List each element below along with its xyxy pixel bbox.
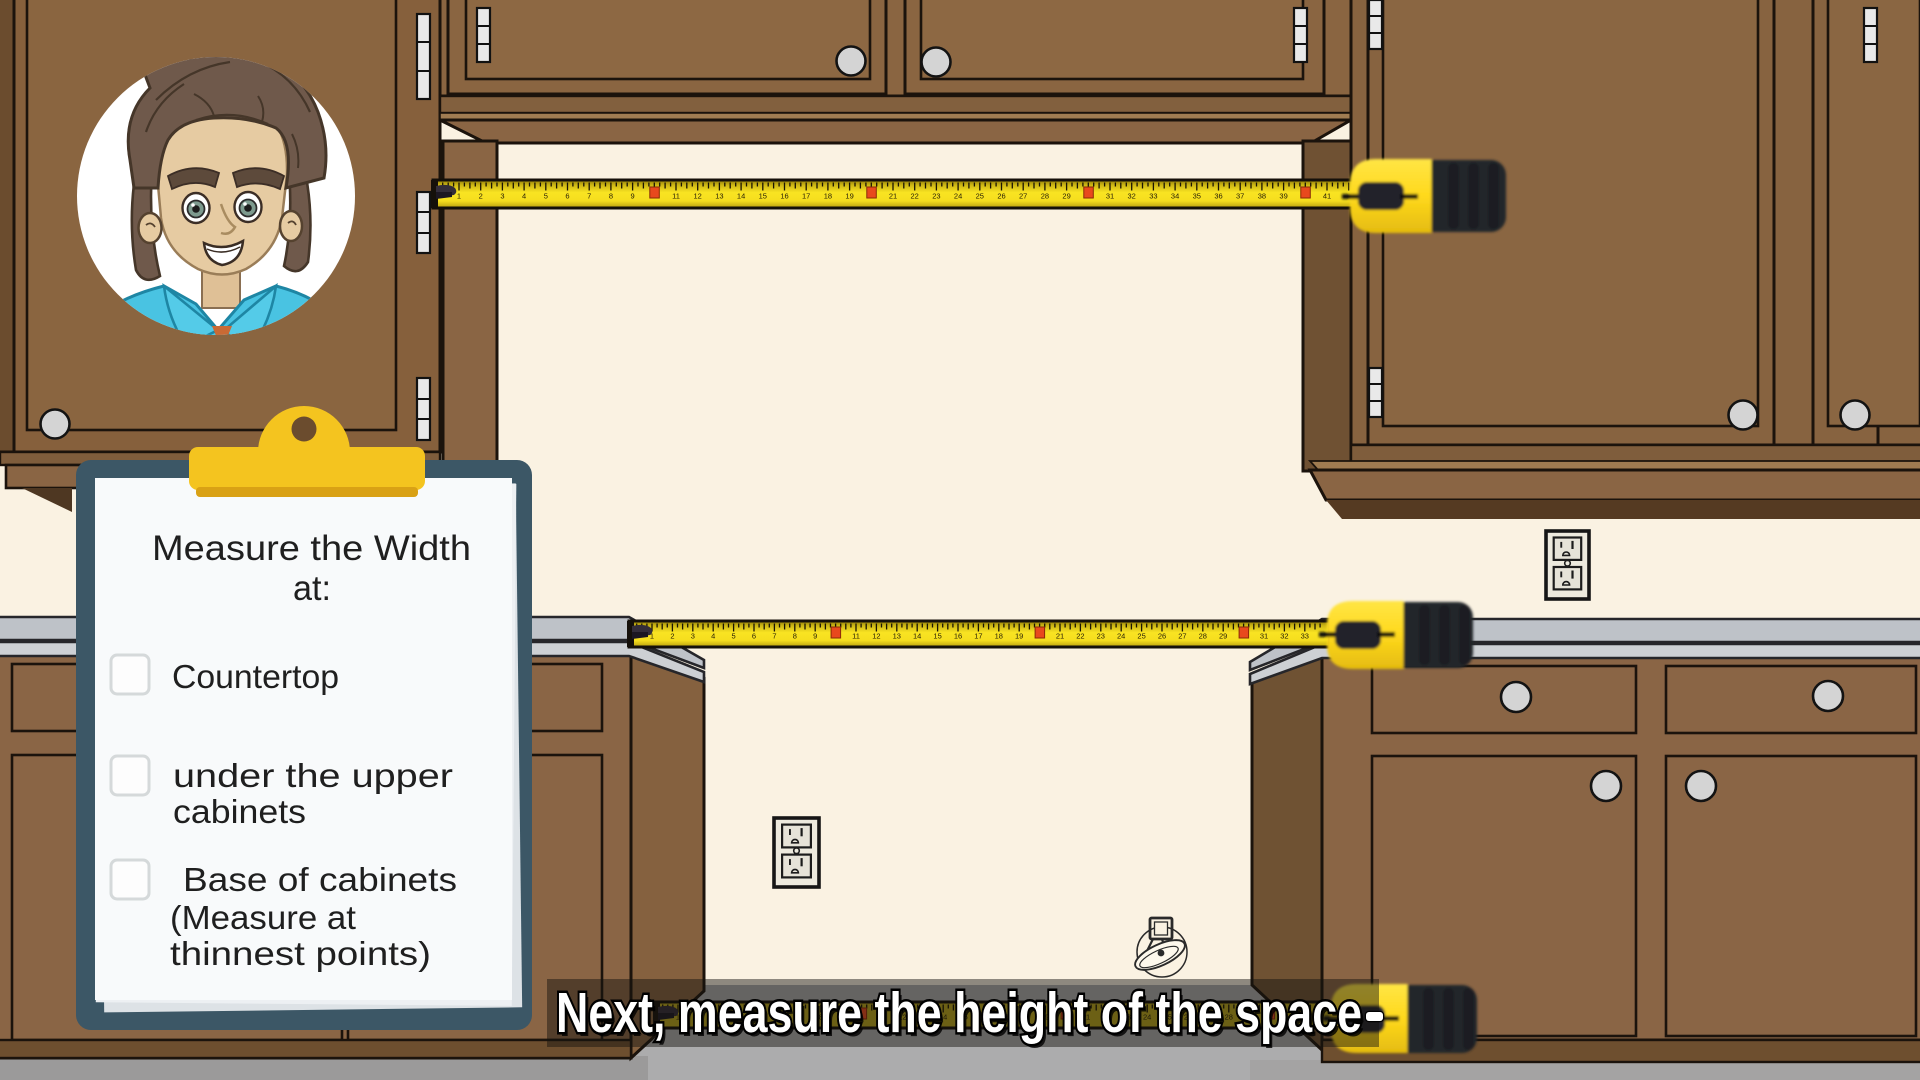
svg-text:9: 9: [631, 192, 635, 201]
svg-text:32: 32: [1128, 192, 1136, 201]
svg-text:6: 6: [565, 192, 569, 201]
svg-text:21: 21: [1056, 632, 1064, 641]
svg-text:5: 5: [544, 192, 548, 201]
svg-text:29: 29: [1219, 632, 1227, 641]
svg-text:thinnest points): thinnest points): [170, 935, 431, 972]
svg-text:2: 2: [479, 192, 483, 201]
svg-text:39: 39: [1279, 192, 1287, 201]
svg-text:32: 32: [1280, 632, 1288, 641]
svg-text:33: 33: [1149, 192, 1157, 201]
svg-text:3: 3: [691, 632, 695, 641]
svg-text:15: 15: [759, 192, 767, 201]
svg-text:25: 25: [976, 192, 984, 201]
svg-text:19: 19: [1015, 632, 1023, 641]
svg-text:(Measure at: (Measure at: [170, 899, 356, 936]
svg-text:Next, measure the height of th: Next, measure the height of the space: [556, 981, 1362, 1045]
svg-text:8: 8: [609, 192, 613, 201]
svg-text:28: 28: [1199, 632, 1207, 641]
svg-text:at:: at:: [293, 569, 331, 608]
svg-text:16: 16: [780, 192, 788, 201]
svg-text:24: 24: [954, 192, 962, 201]
svg-text:Measure the Width: Measure the Width: [152, 529, 471, 568]
svg-text:31: 31: [1260, 632, 1268, 641]
svg-text:19: 19: [845, 192, 853, 201]
svg-text:1: 1: [457, 192, 461, 201]
svg-text:12: 12: [694, 192, 702, 201]
svg-text:5: 5: [732, 632, 736, 641]
svg-text:31: 31: [1106, 192, 1114, 201]
svg-text:25: 25: [1137, 632, 1145, 641]
svg-text:4: 4: [711, 632, 715, 641]
svg-text:33: 33: [1301, 632, 1309, 641]
svg-text:26: 26: [1158, 632, 1166, 641]
svg-text:38: 38: [1258, 192, 1266, 201]
svg-text:27: 27: [1019, 192, 1027, 201]
svg-text:24: 24: [1117, 632, 1125, 641]
svg-text:18: 18: [824, 192, 832, 201]
svg-text:7: 7: [772, 632, 776, 641]
svg-text:26: 26: [997, 192, 1005, 201]
svg-text:15: 15: [933, 632, 941, 641]
svg-text:11: 11: [852, 632, 860, 641]
svg-text:41: 41: [1323, 192, 1331, 201]
svg-text:29: 29: [1062, 192, 1070, 201]
svg-text:28: 28: [1041, 192, 1049, 201]
svg-text:13: 13: [715, 192, 723, 201]
svg-text:11: 11: [672, 192, 680, 201]
svg-text:18: 18: [995, 632, 1003, 641]
svg-text:13: 13: [893, 632, 901, 641]
svg-text:cabinets: cabinets: [173, 793, 306, 830]
svg-text:37: 37: [1236, 192, 1244, 201]
svg-text:23: 23: [1097, 632, 1105, 641]
svg-text:14: 14: [737, 192, 745, 201]
svg-text:17: 17: [974, 632, 982, 641]
svg-text:9: 9: [813, 632, 817, 641]
svg-text:35: 35: [1193, 192, 1201, 201]
svg-text:27: 27: [1178, 632, 1186, 641]
svg-text:22: 22: [911, 192, 919, 201]
svg-text:14: 14: [913, 632, 921, 641]
svg-text:34: 34: [1171, 192, 1179, 201]
svg-text:8: 8: [793, 632, 797, 641]
svg-text:36: 36: [1214, 192, 1222, 201]
svg-text:4: 4: [522, 192, 526, 201]
svg-text:22: 22: [1076, 632, 1084, 641]
svg-text:2: 2: [670, 632, 674, 641]
svg-text:12: 12: [872, 632, 880, 641]
svg-text:Countertop: Countertop: [172, 658, 339, 695]
svg-text:23: 23: [932, 192, 940, 201]
svg-text:6: 6: [752, 632, 756, 641]
svg-text:17: 17: [802, 192, 810, 201]
svg-text:under the upper: under the upper: [173, 757, 453, 794]
svg-text:21: 21: [889, 192, 897, 201]
svg-text:Base of cabinets: Base of cabinets: [183, 861, 457, 898]
svg-text:16: 16: [954, 632, 962, 641]
svg-text:3: 3: [500, 192, 504, 201]
svg-text:7: 7: [587, 192, 591, 201]
